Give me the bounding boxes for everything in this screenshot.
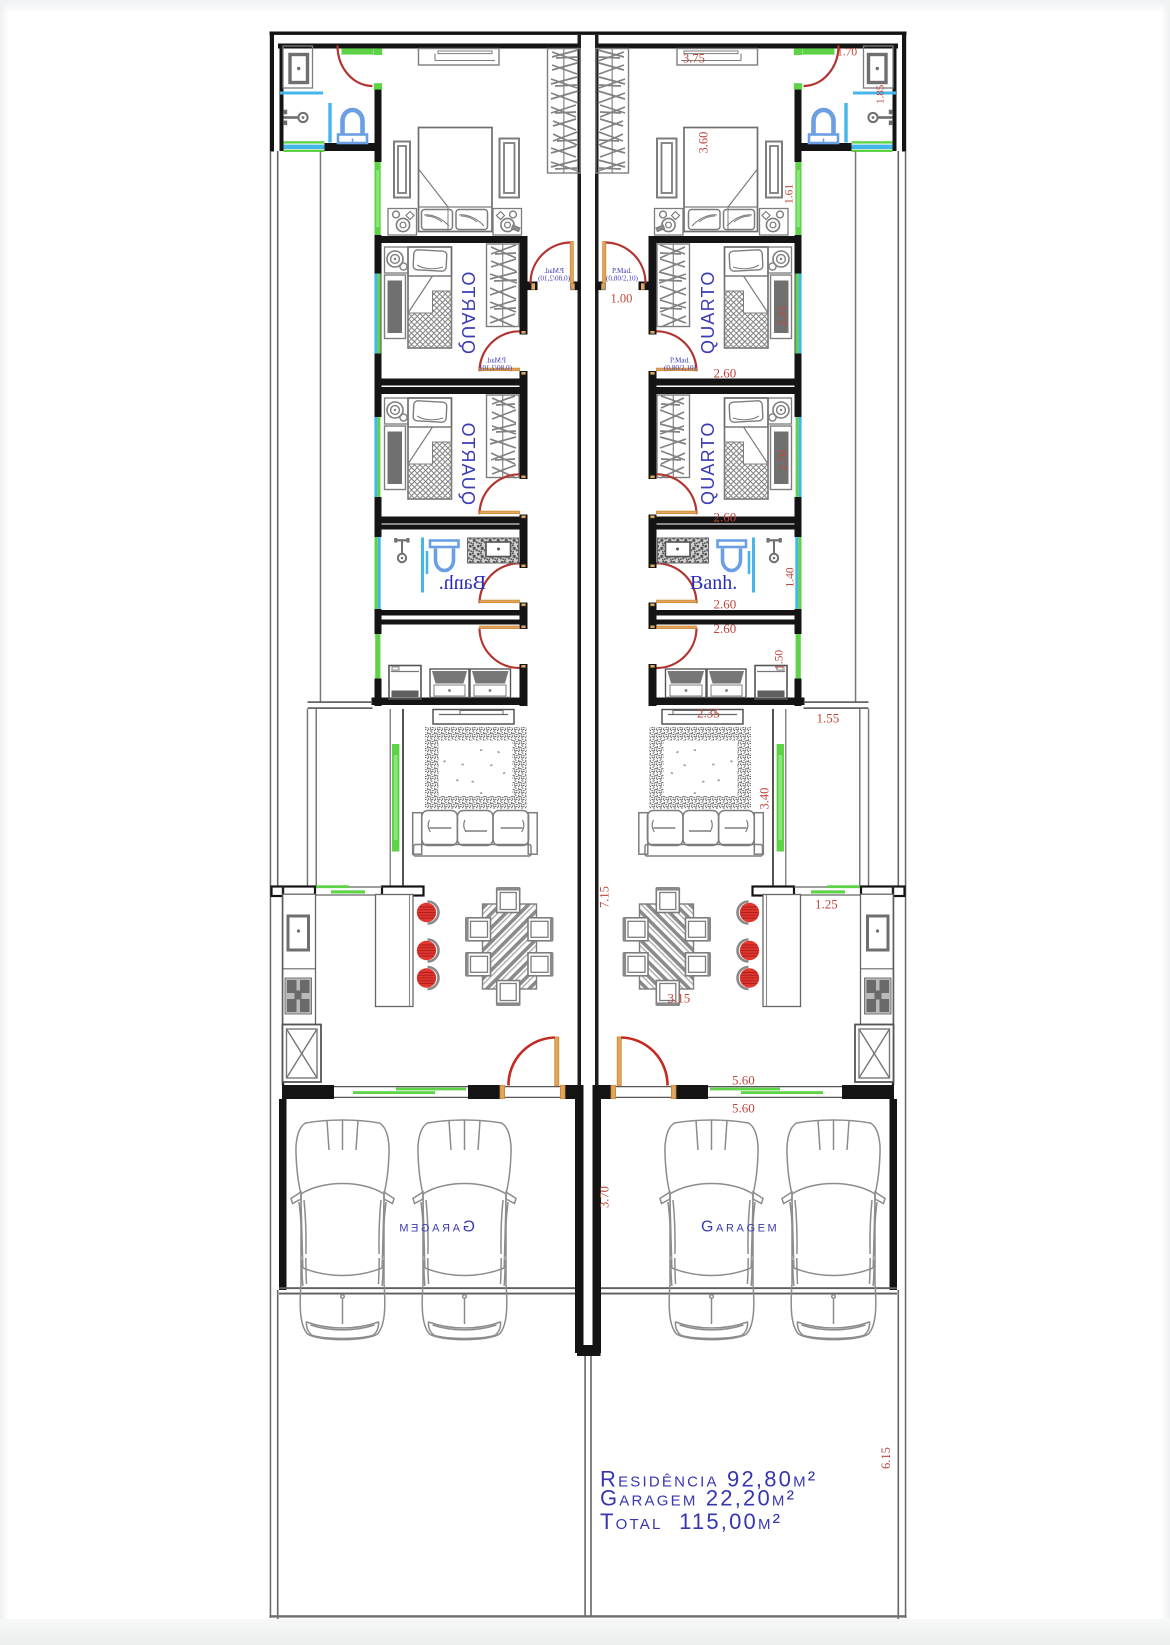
svg-text:1.00: 1.00 [611, 292, 633, 306]
svg-text:2.60: 2.60 [714, 366, 737, 381]
svg-text:5.60: 5.60 [732, 1073, 755, 1088]
svg-text:7.15: 7.15 [598, 886, 612, 908]
svg-text:3.70: 3.70 [598, 1186, 612, 1208]
svg-text:Total 115,00m²: Total 115,00m² [600, 1509, 782, 1534]
svg-text:1.85: 1.85 [875, 84, 887, 104]
svg-text:1.70: 1.70 [837, 47, 857, 59]
svg-text:2.60: 2.60 [714, 597, 737, 612]
svg-text:3.60: 3.60 [697, 132, 711, 154]
svg-text:3.40: 3.40 [758, 788, 772, 810]
svg-text:1.25: 1.25 [815, 897, 838, 912]
svg-text:1.61: 1.61 [783, 184, 795, 204]
svg-text:2.60: 2.60 [714, 510, 737, 525]
svg-text:3.15: 3.15 [668, 991, 691, 1006]
svg-text:2.35: 2.35 [697, 706, 720, 721]
svg-text:1.50: 1.50 [774, 650, 786, 670]
svg-text:Garagem 22,20m²: Garagem 22,20m² [600, 1486, 796, 1511]
svg-text:5.60: 5.60 [732, 1101, 755, 1116]
svg-text:1.40: 1.40 [785, 567, 797, 587]
svg-text:2.70: 2.70 [778, 450, 790, 470]
svg-text:2.55: 2.55 [777, 306, 789, 326]
svg-text:2.60: 2.60 [714, 621, 737, 636]
svg-text:3.75: 3.75 [683, 52, 705, 66]
svg-text:6.15: 6.15 [879, 1447, 893, 1469]
svg-text:1.55: 1.55 [817, 711, 840, 726]
